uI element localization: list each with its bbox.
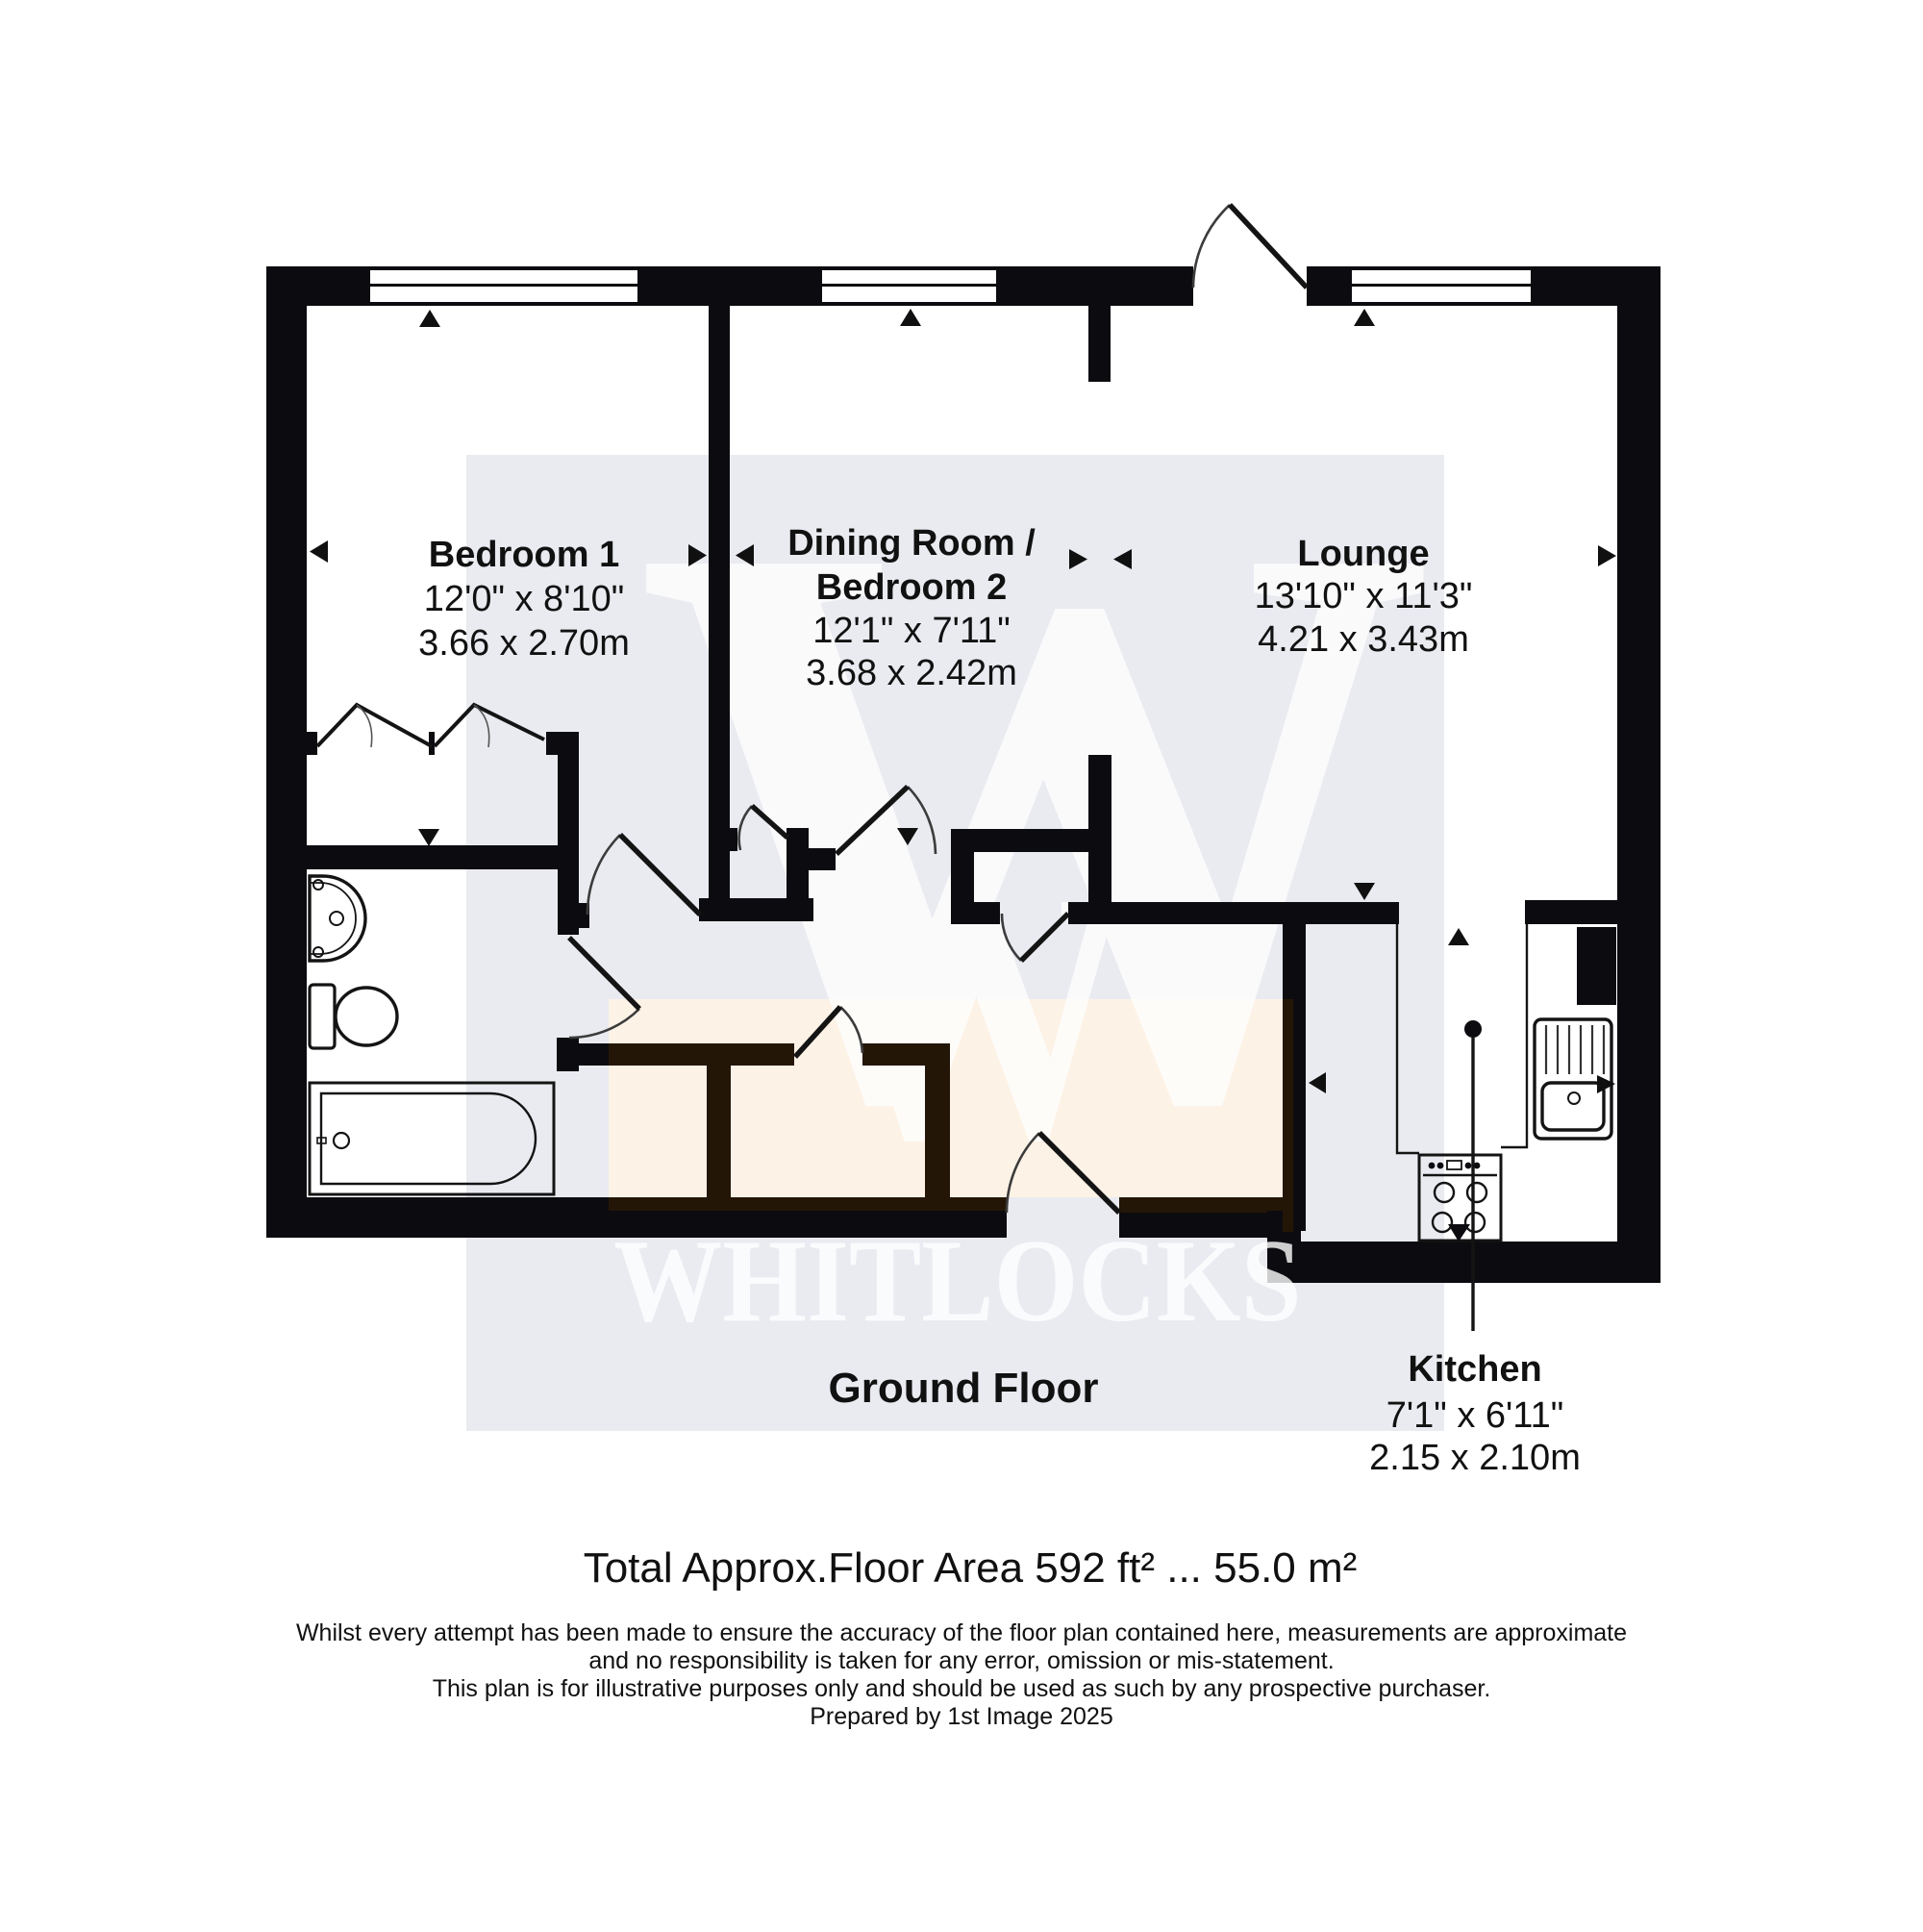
svg-text:12'1" x 7'11": 12'1" x 7'11" <box>812 611 1011 651</box>
svg-text:Kitchen: Kitchen <box>1408 1349 1541 1390</box>
svg-text:2.15 x 2.10m: 2.15 x 2.10m <box>1369 1438 1581 1478</box>
svg-text:Whilst every attempt has been: Whilst every attempt has been made to en… <box>296 1619 1627 1646</box>
svg-text:WHITLOCKS: WHITLOCKS <box>613 1216 1301 1346</box>
svg-text:Total Approx.Floor Area 592 ft: Total Approx.Floor Area 592 ft² ... 55.0… <box>584 1544 1358 1592</box>
svg-text:Bedroom 1: Bedroom 1 <box>429 535 619 575</box>
svg-text:This plan is for illustrative: This plan is for illustrative purposes o… <box>433 1675 1491 1702</box>
svg-text:3.66 x 2.70m: 3.66 x 2.70m <box>418 623 630 664</box>
svg-text:7'1" x 6'11": 7'1" x 6'11" <box>1386 1395 1563 1436</box>
svg-text:and no responsibility is taken: and no responsibility is taken for any e… <box>588 1647 1334 1674</box>
svg-text:12'0" x 8'10": 12'0" x 8'10" <box>424 579 624 619</box>
svg-text:Bedroom 2: Bedroom 2 <box>816 567 1007 608</box>
svg-text:Dining Room /: Dining Room / <box>787 523 1036 564</box>
svg-text:4.21 x 3.43m: 4.21 x 3.43m <box>1258 619 1469 660</box>
svg-text:13'10" x 11'3": 13'10" x 11'3" <box>1255 576 1473 616</box>
svg-text:Prepared by 1st Image 2025: Prepared by 1st Image 2025 <box>810 1703 1112 1730</box>
svg-text:3.68 x 2.42m: 3.68 x 2.42m <box>806 653 1017 693</box>
svg-text:Lounge: Lounge <box>1297 534 1429 574</box>
svg-text:Ground Floor: Ground Floor <box>828 1365 1098 1412</box>
